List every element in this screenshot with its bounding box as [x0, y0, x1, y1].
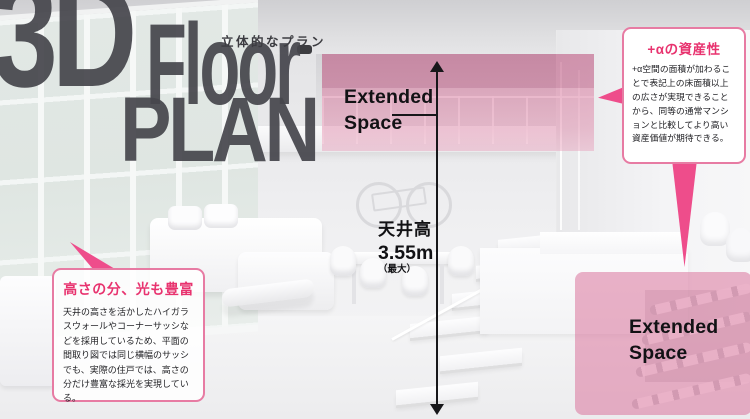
asset-callout: +αの資産性 +α空間の面積が加わることで表記上の床面積以上の広さが実現できるこ…: [622, 27, 746, 164]
vanity-chair: [726, 228, 750, 262]
arrow-down-head: [430, 404, 444, 415]
title-3d: 3D: [0, 0, 131, 110]
sofa-left: [0, 276, 56, 386]
ceiling-height-note: （最大）: [378, 265, 433, 276]
ceiling-height-value: 3.55m: [378, 242, 433, 264]
title-plan: PLAN: [120, 84, 317, 176]
sofa-cushion: [168, 206, 202, 230]
dining-chair: [448, 246, 474, 276]
table-leg: [440, 264, 444, 304]
asset-callout-body: +α空間の面積が加わることで表記上の床面積以上の広さが実現できることから、同等の…: [624, 58, 744, 146]
title-subtitle-jp: 立体的なプラン: [221, 31, 326, 50]
ceiling-height-label: 天井高: [378, 220, 433, 240]
extended-space-right-label: Extended Space: [629, 314, 718, 366]
dining-chair: [330, 246, 356, 276]
arrow-up-head: [430, 61, 444, 72]
daylight-callout-body: 天井の高さを活かしたハイガラスウォールやコーナーサッシなどを採用しているため、平…: [54, 299, 203, 406]
ceiling-height-arrow-line: [436, 70, 438, 412]
floor-plan-visual: Extended Space Extended Space 天井高 3.55m …: [0, 0, 750, 419]
daylight-callout: 高さの分、光も豊富 天井の高さを活かしたハイガラスウォールやコーナーサッシなどを…: [52, 268, 205, 402]
daylight-callout-title: 高さの分、光も豊富: [54, 279, 203, 299]
asset-callout-title: +αの資産性: [624, 38, 744, 58]
label-leader-line: [392, 114, 437, 116]
extended-space-top-label: Extended Space: [344, 84, 433, 136]
storage-bench-top: [540, 232, 688, 254]
sofa-cushion: [204, 204, 238, 228]
ceiling-height-annotation: 天井高 3.55m （最大）: [378, 220, 433, 276]
